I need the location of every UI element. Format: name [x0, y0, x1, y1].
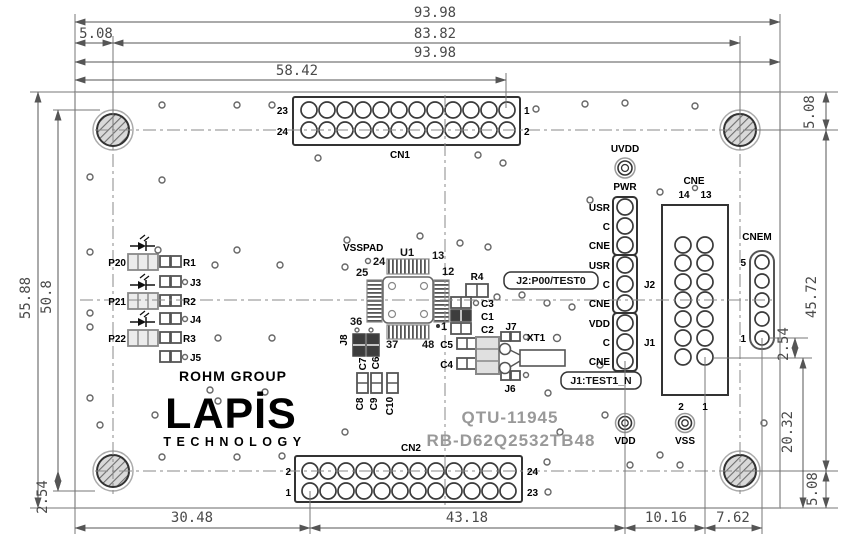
cnem-refdes: CNEM: [742, 232, 771, 243]
board-model-number: QTU-11945: [462, 408, 559, 427]
label-c2: C2: [481, 325, 494, 336]
cne-pin2-label: 2: [678, 402, 684, 413]
pwr-pin-c-3: C: [603, 338, 610, 349]
u1-pin36-label: 36: [350, 316, 362, 328]
cn1-pin2-label: 2: [524, 127, 530, 138]
u1-pin13-label: 13: [432, 250, 444, 262]
r4-component: [466, 284, 488, 297]
cn2-pin23-label: 23: [527, 488, 539, 499]
j1-test1-note: J1:TEST1_N: [570, 375, 631, 387]
label-c4: C4: [440, 360, 453, 371]
cn1-pin1-label: 1: [524, 106, 530, 117]
dim-right-edge-hole-bottom: 5.08: [805, 472, 821, 506]
label-r2: R2: [183, 297, 196, 308]
vss-pad: [676, 414, 695, 433]
label-c9: C9: [369, 397, 380, 410]
pwr-pin-c-1: C: [603, 222, 610, 233]
label-j6: J6: [504, 384, 516, 395]
dim-cne-x: 10.16: [645, 510, 687, 526]
dim-right-pitch: 2.54: [776, 327, 792, 361]
label-j7: J7: [505, 322, 517, 333]
pwr-pin-usr-1: USR: [589, 203, 611, 214]
label-p22: P22: [108, 334, 126, 345]
j2-test0-note: J2:P00/TEST0: [516, 275, 586, 287]
cn2-pin2-label: 2: [285, 467, 291, 478]
pcb-dimension-drawing: 93.98 5.08 83.82 93.98 58.42 55.88 50.8 …: [0, 0, 850, 541]
j2-refdes: J2: [644, 280, 656, 291]
dim-cnem-x: 7.62: [716, 510, 750, 526]
cn1-refdes: CN1: [390, 150, 410, 161]
label-c10: C10: [385, 396, 396, 415]
label-c7: C7: [358, 357, 369, 370]
cn2-pin24-label: 24: [527, 467, 539, 478]
u1-pin37-label: 37: [386, 339, 398, 351]
dim-vdd-x: 43.18: [446, 510, 488, 526]
label-c6: C6: [371, 356, 382, 369]
cnem-pin5-label: 5: [740, 258, 746, 269]
label-c8: C8: [355, 397, 366, 410]
u1-pin-strip-top: [387, 259, 429, 274]
label-c3: C3: [481, 299, 494, 310]
pwr-pin-usr-2: USR: [589, 261, 611, 272]
cn1-pin24-label: 24: [277, 127, 289, 138]
lapis-logo-text: LAPİS: [165, 390, 297, 438]
label-r4: R4: [471, 272, 484, 283]
cnem-pin1-label: 1: [740, 334, 746, 345]
cn2-refdes: CN2: [401, 443, 421, 454]
board-part-number: RB-D62Q2532TB48: [426, 431, 595, 450]
dim-cn-row-span: 50.8: [39, 280, 55, 314]
u1-pin12-label: 12: [442, 266, 454, 278]
technology-logo-text: TECHNOLOGY: [163, 435, 306, 449]
cn1-pin23-label: 23: [277, 106, 289, 117]
dim-board-height: 55.88: [18, 277, 34, 319]
dim-cn2-pin1-x: 30.48: [171, 510, 213, 526]
u1-pin-strip-bottom: [387, 325, 429, 339]
electrolytic-component: [476, 337, 499, 374]
c2-component: [451, 323, 471, 334]
label-j5: J5: [190, 353, 202, 364]
label-j3: J3: [190, 278, 202, 289]
cne-pin14-label: 14: [678, 190, 690, 201]
drawing-canvas: 93.98 5.08 83.82 93.98 58.42 55.88 50.8 …: [0, 0, 850, 541]
rohm-group-logo-text: ROHM GROUP: [179, 368, 287, 384]
cn2-pin1-label: 1: [285, 488, 291, 499]
cne-pin1-label: 1: [702, 402, 708, 413]
u1-pin-strip-left: [367, 280, 382, 322]
u1-pin-strip-right: [434, 280, 449, 322]
dim-hole-span-x: 83.82: [414, 26, 456, 42]
label-p21: P21: [108, 297, 126, 308]
pwr-pin-cne-1: CNE: [589, 241, 610, 252]
c1-component: [451, 310, 471, 321]
label-c1: C1: [481, 312, 494, 323]
j1-refdes: J1: [644, 338, 656, 349]
dim-cn1-pin1-x: 58.42: [276, 63, 318, 79]
uvdd-pad: [615, 158, 635, 178]
label-r1: R1: [183, 258, 196, 269]
label-p20: P20: [108, 258, 126, 269]
u1-pin1-dot: [436, 324, 440, 328]
vss-label: VSS: [675, 436, 695, 447]
pwr-pin-cne-3: CNE: [589, 357, 610, 368]
c8-c9-c10-caps: [357, 373, 398, 393]
u1-pin48-label: 48: [422, 339, 434, 351]
cne-pin13-label: 13: [700, 190, 712, 201]
dim-top-width-a: 93.98: [414, 5, 456, 21]
label-xt1: XT1: [527, 333, 546, 344]
pwr-label: PWR: [613, 182, 637, 193]
logo: ROHM GROUP LAPİS TECHNOLOGY: [163, 368, 306, 449]
u1-pin24-label: 24: [373, 256, 386, 268]
vdd-label: VDD: [614, 436, 635, 447]
dim-cne-to-edge: 20.32: [780, 411, 796, 453]
u1-pin1-label: 1: [441, 321, 447, 333]
label-c5: C5: [440, 340, 453, 351]
pwr-pin-cne-2: CNE: [589, 299, 610, 310]
uvdd-label: UVDD: [611, 144, 639, 155]
u1-pin25-label: 25: [356, 267, 368, 279]
dim-hole-span-y: 45.72: [804, 276, 820, 318]
label-j4: J4: [190, 315, 202, 326]
pwr-pin-c-2: C: [603, 280, 610, 291]
u1-refdes: U1: [400, 247, 414, 259]
dim-right-edge-hole-top: 5.08: [802, 95, 818, 129]
dim-edge-to-hole: 5.08: [79, 26, 113, 42]
dim-top-width-b: 93.98: [414, 45, 456, 61]
pwr-pin-vdd: VDD: [589, 319, 610, 330]
label-r3: R3: [183, 334, 196, 345]
label-j8: J8: [339, 334, 350, 346]
cne-refdes: CNE: [683, 176, 704, 187]
u1-vsspad-label: VSSPAD: [343, 243, 383, 254]
dim-cn2-row-offset: 2.54: [35, 480, 51, 514]
